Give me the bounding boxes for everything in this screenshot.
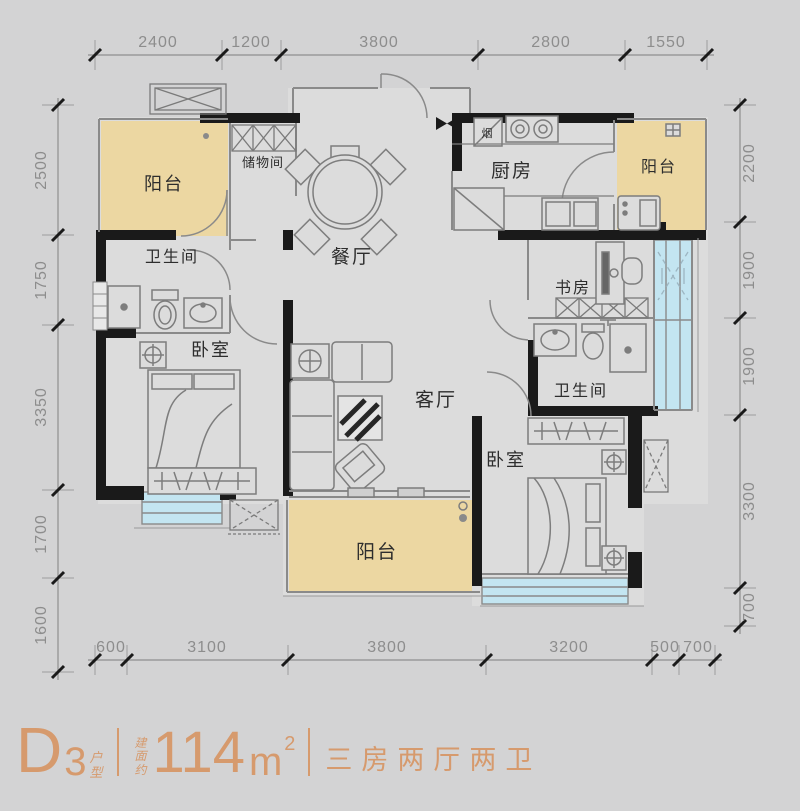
label-study: 书房 (555, 279, 591, 297)
dim-label: 500 (650, 639, 680, 656)
stove (506, 116, 558, 142)
label-storage: 储物间 (242, 155, 284, 170)
label-bedroom-left: 卧室 (191, 340, 231, 360)
dim-label: 1750 (33, 260, 50, 300)
title-block: D 3 户 型 建 面 约 114 m 2 三房两厅两卫 (16, 718, 541, 782)
dim-label: 1200 (231, 34, 271, 51)
area-unit: m (249, 742, 282, 782)
label-bath-left: 卫生间 (145, 248, 199, 266)
dim-label: 700 (741, 592, 758, 622)
label-bedroom-right: 卧室 (486, 450, 526, 470)
dim-label: 3800 (367, 639, 407, 656)
area-value: 114 (153, 724, 245, 782)
toilet (154, 301, 176, 329)
dim-label: 2200 (741, 143, 758, 183)
dim-label: 1900 (741, 250, 758, 290)
label-balcony-top-right: 阳台 (641, 158, 677, 176)
dim-label: 600 (96, 639, 126, 656)
label-kitchen: 厨房 (491, 160, 533, 182)
dim-label: 1900 (741, 346, 758, 386)
toilet (583, 333, 603, 359)
toilet-tank (582, 324, 604, 332)
window-bedroom-right (482, 578, 628, 604)
dimension-left: 2500 1750 3350 1700 1600 (33, 98, 74, 680)
dimension-bottom: 600 3100 3800 3200 500 700 (88, 639, 722, 675)
label-balcony-top-left: 阳台 (144, 174, 184, 194)
left-wall-window (93, 282, 107, 330)
dim-label: 2400 (138, 34, 178, 51)
dim-label: 1600 (33, 605, 50, 645)
desk-chair (622, 258, 642, 284)
unit-type-number: 3 (64, 742, 86, 782)
bay-window-right (654, 240, 692, 410)
layout-tagline: 三房两厅两卫 (325, 747, 541, 774)
unit-type-suffix: 户 型 (89, 751, 102, 780)
label-living: 客厅 (415, 389, 457, 411)
label-balcony-bottom: 阳台 (356, 541, 398, 563)
title-divider (308, 728, 310, 776)
area-exponent: 2 (284, 734, 295, 754)
label-dining: 餐厅 (331, 246, 373, 268)
dim-label: 3300 (741, 481, 758, 521)
label-flue: 烟 (482, 126, 493, 140)
floorplan-page: 阳台 储物间 餐厅 厨房 阳台 烟 卫生间 卧室 客厅 书房 卫生间 卧室 阳台… (0, 0, 800, 811)
title-divider (117, 728, 119, 776)
dim-label: 1700 (33, 514, 50, 554)
unit-type-letter: D (16, 718, 62, 782)
label-bath-right: 卫生间 (554, 382, 608, 400)
floor-plan-drawing: 阳台 储物间 餐厅 厨房 阳台 烟 卫生间 卧室 客厅 书房 卫生间 卧室 阳台… (0, 0, 800, 811)
dim-label: 3800 (359, 34, 399, 51)
area-label: 建 面 约 (134, 737, 146, 778)
dim-label: 700 (683, 639, 713, 656)
window-bedroom-left (142, 492, 222, 524)
dim-label: 1550 (646, 34, 686, 51)
dim-label: 2800 (531, 34, 571, 51)
dim-label: 3350 (33, 387, 50, 427)
dim-label: 2500 (33, 150, 50, 190)
dim-label: 3200 (549, 639, 589, 656)
dimension-top: 2400 1200 3800 2800 1550 (88, 34, 714, 70)
toilet-tank (152, 290, 178, 300)
dimension-right: 2200 1900 1900 3300 700 (724, 98, 758, 634)
dim-label: 3100 (187, 639, 227, 656)
sofa-set (290, 342, 392, 495)
